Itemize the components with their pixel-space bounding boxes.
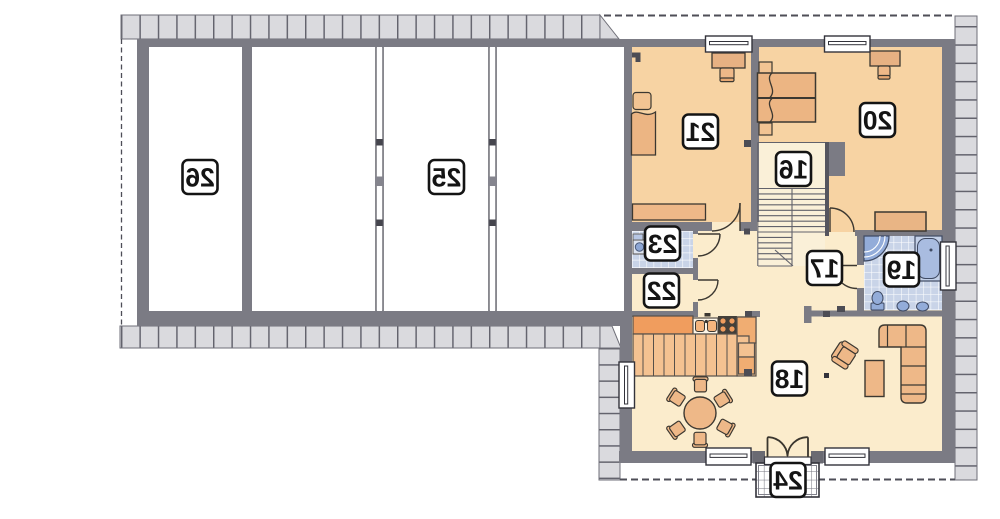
svg-text:17: 17 [810,254,839,284]
svg-text:20: 20 [863,106,892,136]
svg-text:19: 19 [887,255,916,285]
svg-text:16: 16 [779,155,808,185]
svg-text:25: 25 [432,163,461,193]
svg-text:23: 23 [648,229,677,259]
svg-text:18: 18 [775,364,804,394]
svg-text:26: 26 [185,163,214,193]
svg-text:24: 24 [773,466,803,496]
svg-text:21: 21 [686,117,715,147]
svg-text:22: 22 [647,276,676,306]
